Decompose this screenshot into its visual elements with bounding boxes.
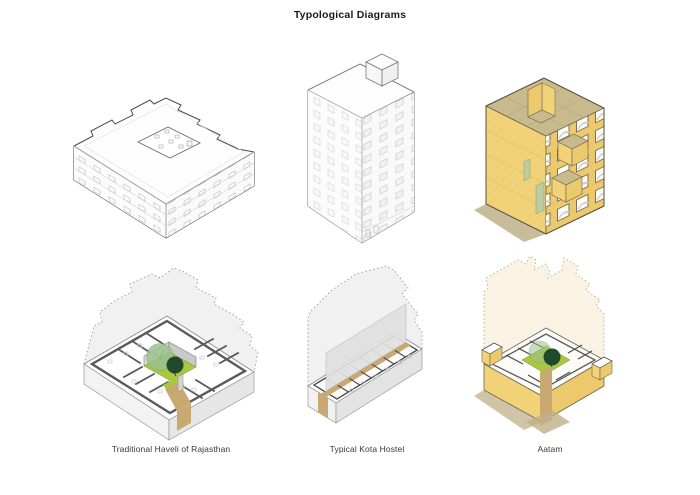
aatam-axonometric-drawing	[478, 44, 618, 244]
diagram-hostel-plan	[298, 246, 438, 441]
haveli-axonometric-drawing	[60, 42, 260, 242]
page-title: Typological Diagrams	[0, 9, 700, 21]
haveli-massing	[74, 98, 254, 238]
diagram-hostel-axonometric	[296, 46, 436, 241]
caption-haveli: Traditional Haveli of Rajasthan	[61, 444, 281, 454]
aatam-roof-notch	[528, 83, 555, 123]
aatam-plan-drawing	[474, 244, 614, 439]
diagram-aatam-axonometric	[478, 44, 618, 244]
tree-canopy-dark	[167, 357, 184, 374]
green-accent-panel-small	[524, 159, 530, 181]
hostel-massing	[308, 54, 414, 243]
hostel-plan-drawing	[298, 246, 438, 441]
diagram-haveli-axonometric	[60, 42, 260, 242]
caption-aatam: Aatam	[440, 444, 660, 454]
green-accent-panel	[536, 182, 544, 214]
diagram-aatam-plan	[474, 244, 614, 439]
diagram-haveli-plan	[72, 256, 262, 446]
tree-canopy-dark	[544, 349, 561, 366]
hostel-facade-right	[362, 92, 414, 243]
haveli-plan-drawing	[72, 256, 262, 446]
hostel-axonometric-drawing	[296, 46, 436, 241]
aatam-massing	[474, 78, 604, 242]
